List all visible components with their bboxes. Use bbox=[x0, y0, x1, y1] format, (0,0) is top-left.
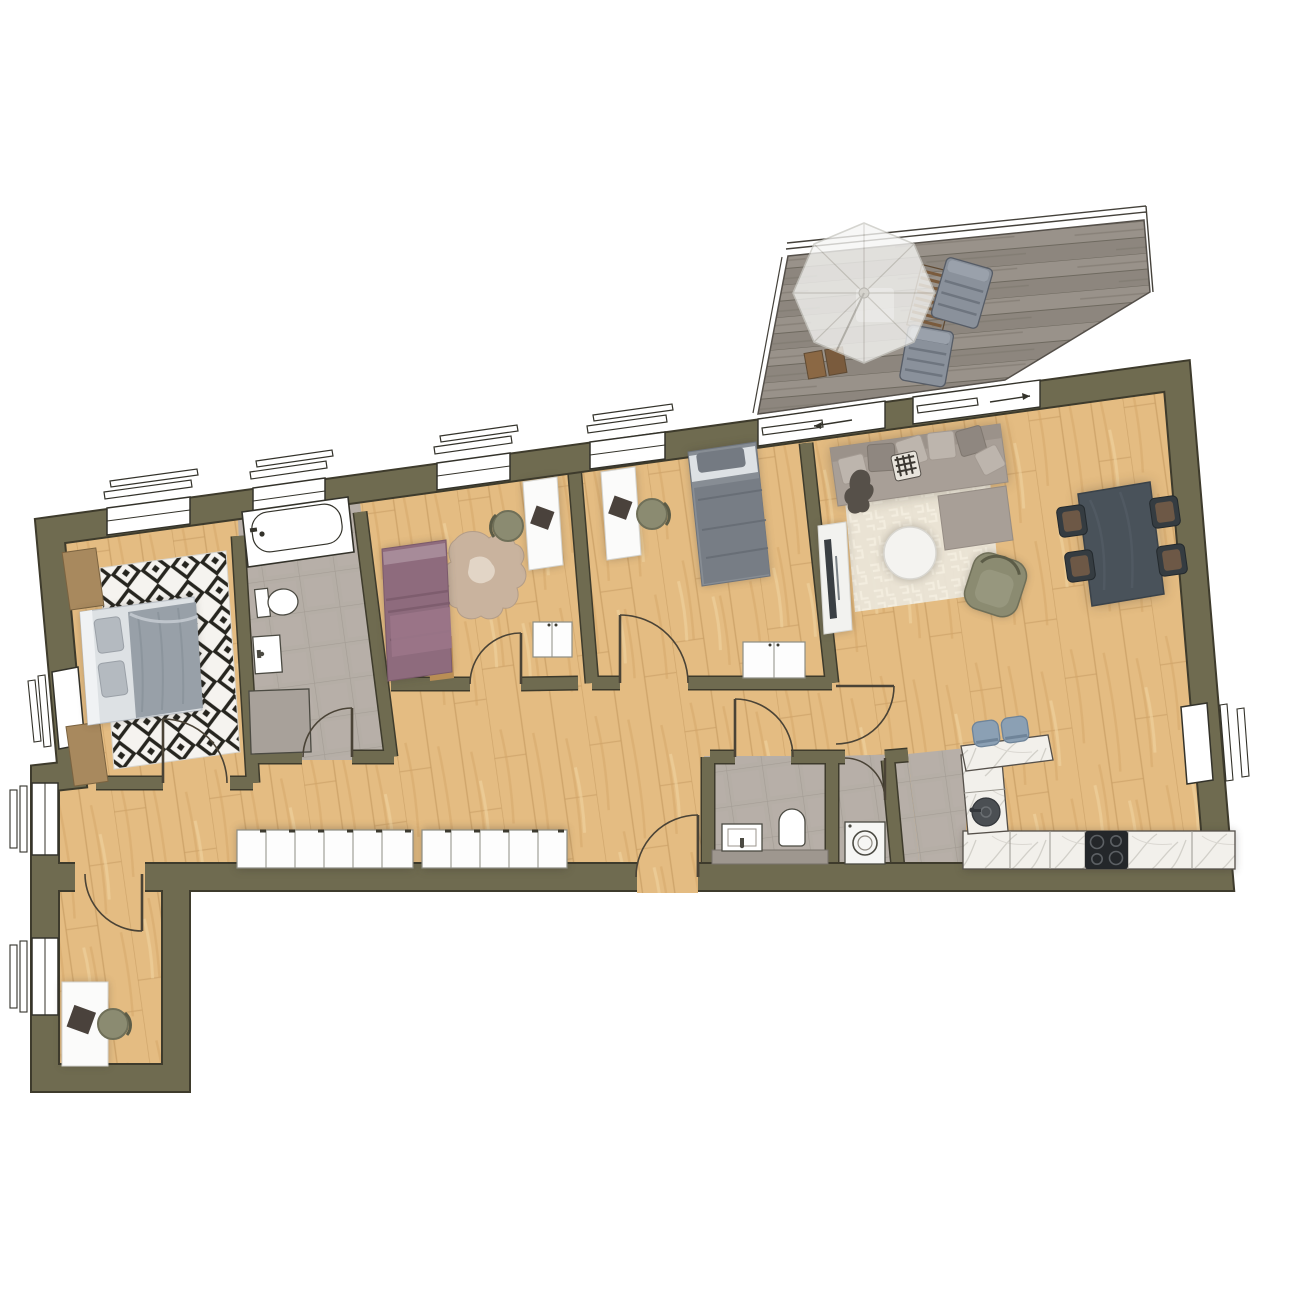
hallway bbox=[237, 828, 567, 870]
dining-chair-3 bbox=[1149, 495, 1181, 529]
dining-chair-4 bbox=[1156, 543, 1188, 577]
double-bed bbox=[80, 597, 203, 725]
window-bedroom2-north bbox=[434, 425, 518, 490]
sofa-pillow-4 bbox=[927, 431, 957, 461]
bathroom-sink bbox=[253, 635, 283, 674]
bed-pillow-1 bbox=[94, 616, 124, 653]
office-desk-chair bbox=[98, 1009, 128, 1039]
single-bed-purple bbox=[382, 540, 454, 681]
wardrobe-row-left bbox=[237, 830, 413, 868]
sofa-chaise bbox=[938, 486, 1013, 550]
floor-plan-canvas bbox=[0, 0, 1300, 1300]
window-hall-west bbox=[10, 783, 58, 855]
bathtub-faucet bbox=[259, 531, 264, 536]
sofa-pillow-pattern bbox=[891, 451, 922, 482]
window-bedroom3-north bbox=[587, 404, 673, 469]
window-office-west bbox=[10, 938, 58, 1015]
single-bed-gray bbox=[688, 442, 770, 586]
entrance-opening bbox=[637, 861, 698, 893]
wardrobe-row-right bbox=[422, 830, 567, 868]
bar-stool-2 bbox=[1000, 715, 1029, 743]
cooktop bbox=[1085, 831, 1128, 869]
washing-machine bbox=[845, 822, 885, 864]
dining-chair-1 bbox=[1056, 504, 1088, 538]
bed-pillow-2 bbox=[98, 660, 128, 697]
floor-plan-svg bbox=[0, 0, 1300, 1300]
bedroom3-desk-chair bbox=[637, 499, 667, 529]
bedroom3-cabinet bbox=[743, 642, 805, 678]
coffee-table bbox=[883, 526, 937, 580]
tv-console bbox=[818, 522, 852, 634]
bedroom2-desk-chair bbox=[493, 511, 523, 541]
shower bbox=[249, 689, 311, 754]
master-wardrobe bbox=[62, 548, 104, 610]
bedroom2-cabinet bbox=[533, 622, 572, 657]
parasol bbox=[793, 223, 935, 363]
dining-chair-2 bbox=[1064, 549, 1096, 583]
bar-stool-1 bbox=[971, 719, 1000, 747]
wc-sink bbox=[722, 824, 762, 851]
wc-toilet bbox=[779, 809, 805, 846]
window-master-north bbox=[104, 469, 198, 535]
utility-room bbox=[845, 822, 885, 864]
wc-counter bbox=[712, 850, 828, 864]
